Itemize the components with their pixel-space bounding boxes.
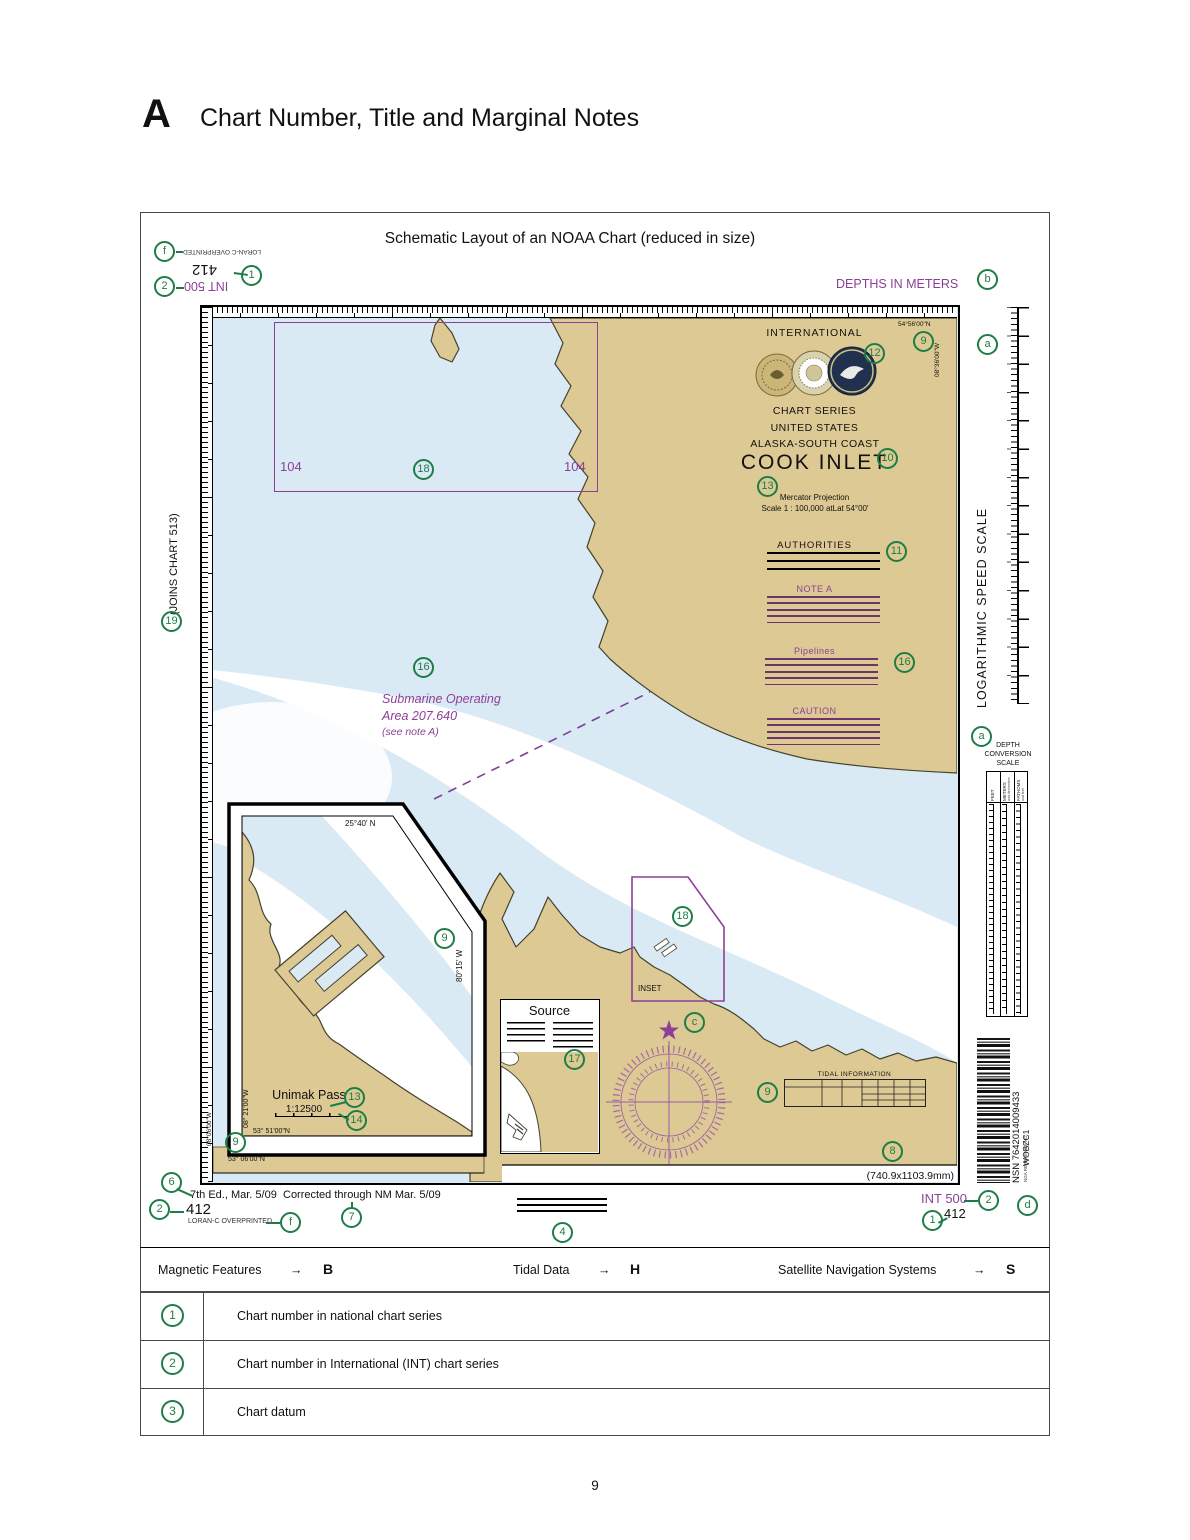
table-column-divider (203, 1292, 204, 1436)
callout-9-inset-corner: 9 (225, 1132, 246, 1153)
table-row-desc: Chart number in national chart series (237, 1309, 442, 1323)
leader-line (170, 1211, 184, 1213)
title-reference-lines (517, 1198, 607, 1213)
table-row: Chart number in national chart series (140, 1292, 1050, 1340)
callout-table-2: 2 (161, 1352, 184, 1375)
callout-d: d (1017, 1195, 1038, 1216)
callout-f-top: f (154, 241, 175, 262)
joins-chart-note: (JOINS CHART 513) (168, 490, 180, 615)
legend-magnetic-label: Magnetic Features (158, 1263, 262, 1277)
callout-a-speed: a (977, 334, 998, 355)
callout-16-notes: 16 (894, 652, 915, 673)
chart-number-bottom-left: 412 (186, 1201, 211, 1218)
submarine-area-line2: Area 207.640 (382, 709, 457, 723)
source-diagram: Source (500, 999, 600, 1154)
depth-scale-label-3: SCALE (975, 760, 1041, 767)
speed-scale-label: LOGARITHMIC SPEED SCALE (975, 398, 989, 708)
legend-bar: Magnetic Features → B Tidal Data → H Sat… (140, 1247, 1050, 1292)
speed-scale-major-ticks (1017, 307, 1029, 704)
pipelines-heading: Pipelines (742, 646, 887, 656)
chart-dimensions: (740.9x1103.9mm) (742, 1170, 954, 1182)
callout-18-neatline: 18 (413, 459, 434, 480)
speed-scale-minor-ticks (1011, 307, 1017, 703)
arrow-icon: → (598, 1263, 611, 1277)
source-text-lines-right (553, 1022, 593, 1050)
callout-12: 12 (864, 343, 885, 364)
table-row: Chart number in International (INT) char… (140, 1340, 1050, 1388)
legend-satnav-ref: S (1006, 1261, 1015, 1277)
nga-reference-value: WOBZC1 (1021, 1108, 1031, 1166)
agency-seals (752, 345, 877, 403)
callout-7: 7 (341, 1207, 362, 1228)
leader-line (266, 1222, 280, 1224)
leader-line (176, 287, 184, 289)
int-number-bottom-right: INT 500 (921, 1191, 967, 1206)
tidal-table-title: TIDAL INFORMATION (784, 1071, 925, 1078)
title-block-international: INTERNATIONAL (742, 327, 887, 339)
note-a-text-lines (767, 596, 880, 628)
figure-title: Schematic Layout of an NOAA Chart (reduc… (240, 230, 900, 248)
callout-8: 8 (882, 1141, 903, 1162)
inset-latitude-top: 25°40' N (345, 819, 376, 828)
leader-line (176, 251, 183, 253)
graticule-top-divisions (202, 313, 957, 318)
callout-13-projection: 13 (757, 476, 778, 497)
legend-satnav-label: Satellite Navigation Systems (778, 1263, 936, 1277)
callout-14: 14 (346, 1110, 367, 1131)
callout-b: b (977, 269, 998, 290)
callout-table-1: 1 (161, 1304, 184, 1327)
barcode (977, 1038, 1010, 1183)
callout-13-inset-scale: 13 (344, 1087, 365, 1108)
inset-longitude-right: 80°15' W (455, 920, 464, 982)
depth-col-meters-sub: and decimeters (1007, 774, 1011, 801)
scale-label: Scale 1 : 100,000 atLat 54°00' (730, 504, 900, 513)
callout-1-top: 1 (241, 265, 262, 286)
callout-a-depth: a (971, 726, 992, 747)
callout-f-bottom: f (280, 1212, 301, 1233)
source-title: Source (501, 1003, 598, 1018)
loran-overprint-bottom: LORAN-C OVERPRINTED (188, 1218, 272, 1225)
inset-scale-bar (275, 1113, 347, 1117)
authorities-heading: AUTHORITIES (742, 540, 887, 551)
chart-series-label: CHART SERIES (742, 405, 887, 417)
callout-1-bottom-right: 1 (922, 1210, 943, 1231)
depths-note: DEPTHS IN METERS (836, 277, 958, 291)
corrected-note: Corrected through NM Mar. 5/09 (283, 1189, 441, 1201)
depth-scale-label-2: CONVERSION (975, 751, 1041, 758)
tidal-table-grid (784, 1079, 926, 1107)
callout-2-top: 2 (154, 276, 175, 297)
adjoining-chart-outline (274, 322, 598, 492)
callout-2-bottom-left: 2 (149, 1199, 170, 1220)
legend-tidal-label: Tidal Data (513, 1263, 570, 1277)
adjoining-chart-number-right: 104 (564, 459, 586, 474)
edition-note: 7th Ed., Mar. 5/09 (190, 1189, 277, 1201)
country-label: UNITED STATES (742, 422, 887, 434)
chart-number-top: 412 (192, 261, 217, 278)
corner-latitude-bottom-left: 53° 06'00"N (228, 1156, 265, 1163)
note-a-heading: NOTE A (742, 584, 887, 594)
loran-overprint-top: LORAN-C OVERPRINTED (183, 248, 261, 255)
speed-scale-index-ticks (1007, 307, 1011, 703)
corner-longitude-bottom-left: 08°06'00"W (206, 1096, 213, 1146)
table-row: Chart datum (140, 1388, 1050, 1436)
callout-9-inset: 9 (434, 928, 455, 949)
callout-2-bottom-right: 2 (978, 1190, 999, 1211)
depth-col-fathoms-sub: and feet (1021, 774, 1025, 801)
caution-text-lines (767, 718, 880, 750)
callout-16-submarine: 16 (413, 657, 434, 678)
callout-11: 11 (886, 541, 907, 562)
section-title: Chart Number, Title and Marginal Notes (200, 104, 639, 133)
adjoining-chart-number-left: 104 (280, 459, 302, 474)
source-sketch (501, 1052, 598, 1152)
arrow-icon: → (973, 1263, 986, 1277)
table-row-desc: Chart number in International (INT) char… (237, 1357, 499, 1371)
page-number: 9 (0, 1478, 1190, 1493)
callout-c: c (684, 1012, 705, 1033)
region-label: ALASKA-SOUTH COAST (730, 438, 900, 450)
legend-tidal-ref: H (630, 1261, 640, 1277)
leader-line (964, 1200, 978, 1202)
callout-10: 10 (877, 448, 898, 469)
depth-conversion-table: FEET METERS and decimeters FATHOMS and f… (986, 771, 1028, 1017)
callout-9-tidal: 9 (757, 1082, 778, 1103)
corner-longitude: 08°36'00"W (934, 329, 941, 377)
callout-19: 19 (161, 611, 182, 632)
table-row-desc: Chart datum (237, 1405, 306, 1419)
graticule-left-divisions (208, 307, 213, 1182)
corner-latitude: 54°56'00"N (898, 321, 931, 328)
callout-18-inset-frame: 18 (672, 906, 693, 927)
callout-17: 17 (564, 1049, 585, 1070)
caution-heading: CAUTION (742, 706, 887, 716)
inset-longitude-left: 08° 21'00"W (243, 1080, 250, 1128)
section-letter: A (142, 92, 171, 137)
callout-6: 6 (161, 1172, 182, 1193)
submarine-area-line1: Submarine Operating (382, 692, 501, 706)
callout-9-corner: 9 (913, 331, 934, 352)
authorities-text-lines (767, 552, 880, 575)
document-page: A Chart Number, Title and Marginal Notes… (0, 0, 1190, 1540)
source-text-lines-left (507, 1022, 545, 1044)
int-number-top: INT 500 (184, 279, 228, 293)
inset-frame-label: INSET (638, 984, 662, 993)
legend-magnetic-ref: B (323, 1261, 333, 1277)
callout-table-3: 3 (161, 1400, 184, 1423)
depth-col-feet: FEET (990, 775, 995, 801)
arrow-icon: → (290, 1263, 303, 1277)
pipelines-text-lines (765, 658, 878, 690)
inset-latitude-bottom: 53° 51'00"N (253, 1128, 290, 1135)
nga-reference-label: NGA REFERENCE NO. (1023, 1168, 1028, 1182)
submarine-area-line3: (see note A) (382, 726, 439, 738)
callout-4: 4 (552, 1222, 573, 1243)
compass-rose (599, 1017, 739, 1167)
